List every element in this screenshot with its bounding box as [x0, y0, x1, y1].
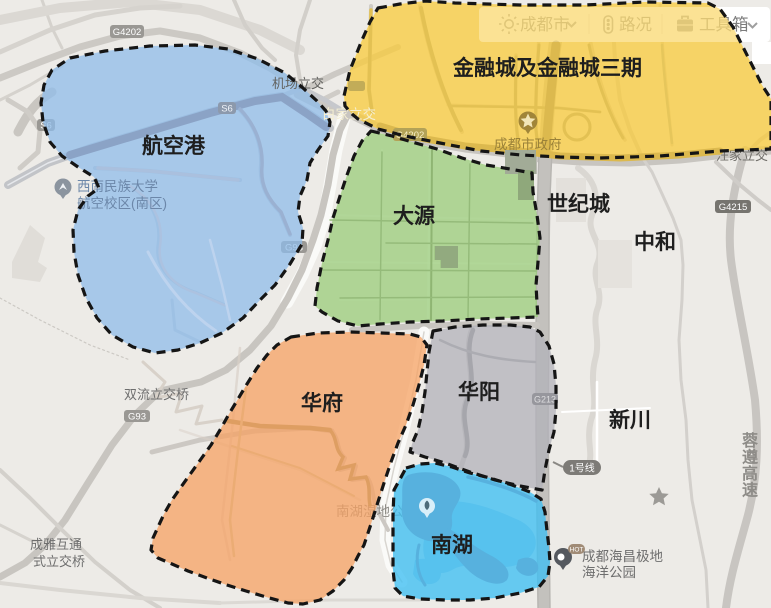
svg-text:海洋公园: 海洋公园 — [582, 565, 636, 580]
svg-text:G4202: G4202 — [113, 27, 142, 38]
svg-text:成都市政府: 成都市政府 — [494, 136, 562, 152]
svg-text:双流立交桥: 双流立交桥 — [124, 387, 189, 402]
svg-text:G213: G213 — [534, 395, 556, 405]
svg-text:1号线: 1号线 — [569, 462, 595, 475]
svg-text:南湖: 南湖 — [431, 533, 473, 557]
svg-text:G4215: G4215 — [719, 202, 748, 213]
svg-text:S6: S6 — [221, 104, 233, 115]
svg-text:华府: 华府 — [301, 391, 343, 415]
svg-text:成都海昌极地: 成都海昌极地 — [582, 549, 663, 564]
svg-text:中和: 中和 — [634, 231, 676, 254]
svg-text:机场立交: 机场立交 — [272, 76, 324, 91]
svg-text:成雅互通: 成雅互通 — [30, 537, 82, 552]
svg-text:华阳: 华阳 — [458, 380, 500, 404]
svg-text:航空校区(南区): 航空校区(南区) — [77, 195, 167, 211]
svg-text:G93: G93 — [128, 412, 146, 423]
svg-text:航空港: 航空港 — [142, 134, 206, 158]
svg-text:世纪城: 世纪城 — [547, 192, 610, 216]
svg-text:西南民族大学: 西南民族大学 — [77, 179, 158, 194]
svg-text:新川: 新川 — [609, 408, 651, 432]
svg-text:金融城及金融城三期: 金融城及金融城三期 — [452, 56, 642, 80]
svg-text:蓉遵高速: 蓉遵高速 — [741, 431, 759, 500]
svg-text:大源: 大源 — [393, 205, 435, 228]
svg-text:式立交桥: 式立交桥 — [33, 554, 85, 569]
